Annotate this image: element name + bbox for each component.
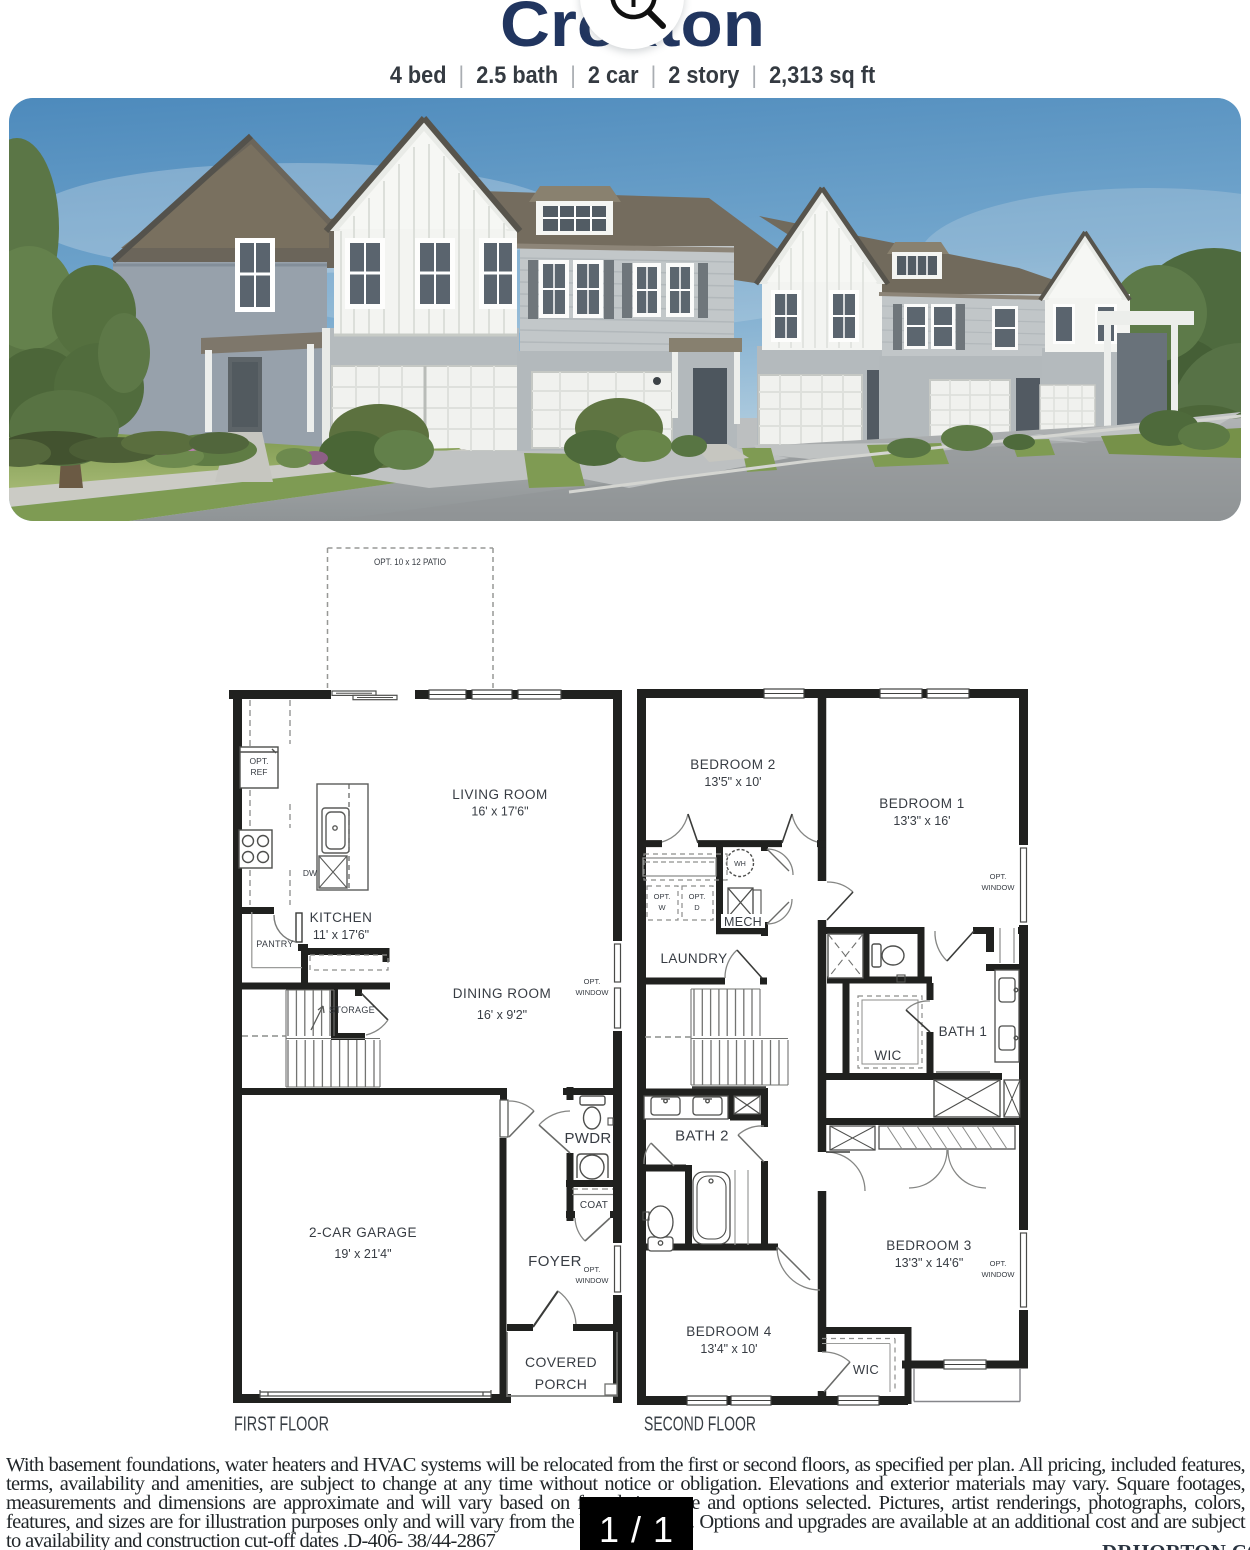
- svg-text:BEDROOM 3: BEDROOM 3: [886, 1238, 972, 1253]
- svg-text:OPT.: OPT.: [990, 872, 1007, 881]
- svg-text:LAUNDRY: LAUNDRY: [660, 951, 727, 966]
- svg-text:D: D: [694, 903, 700, 912]
- svg-text:WINDOW: WINDOW: [982, 1270, 1016, 1279]
- svg-text:BATH 2: BATH 2: [675, 1128, 729, 1145]
- svg-text:WIC: WIC: [853, 1362, 879, 1377]
- svg-text:BEDROOM 1: BEDROOM 1: [879, 796, 965, 811]
- svg-text:BEDROOM 4: BEDROOM 4: [686, 1324, 772, 1339]
- svg-text:OPT.: OPT.: [654, 892, 671, 901]
- svg-text:13'4" x 10': 13'4" x 10': [700, 1342, 757, 1356]
- svg-text:SECOND FLOOR: SECOND FLOOR: [644, 1414, 756, 1436]
- svg-text:WIC: WIC: [874, 1048, 901, 1063]
- svg-text:WH: WH: [734, 861, 746, 868]
- svg-text:13'3" x 16': 13'3" x 16': [893, 814, 950, 828]
- svg-text:13'5" x 10': 13'5" x 10': [704, 775, 761, 789]
- svg-text:MECH: MECH: [724, 915, 762, 929]
- svg-text:BATH 1: BATH 1: [939, 1024, 988, 1039]
- svg-text:WINDOW: WINDOW: [982, 883, 1016, 892]
- svg-text:BEDROOM 2: BEDROOM 2: [690, 757, 776, 772]
- svg-text:13'3" x 14'6": 13'3" x 14'6": [895, 1256, 964, 1270]
- svg-text:OPT.: OPT.: [689, 892, 706, 901]
- svg-text:W: W: [658, 903, 666, 912]
- svg-text:OPT.: OPT.: [990, 1259, 1007, 1268]
